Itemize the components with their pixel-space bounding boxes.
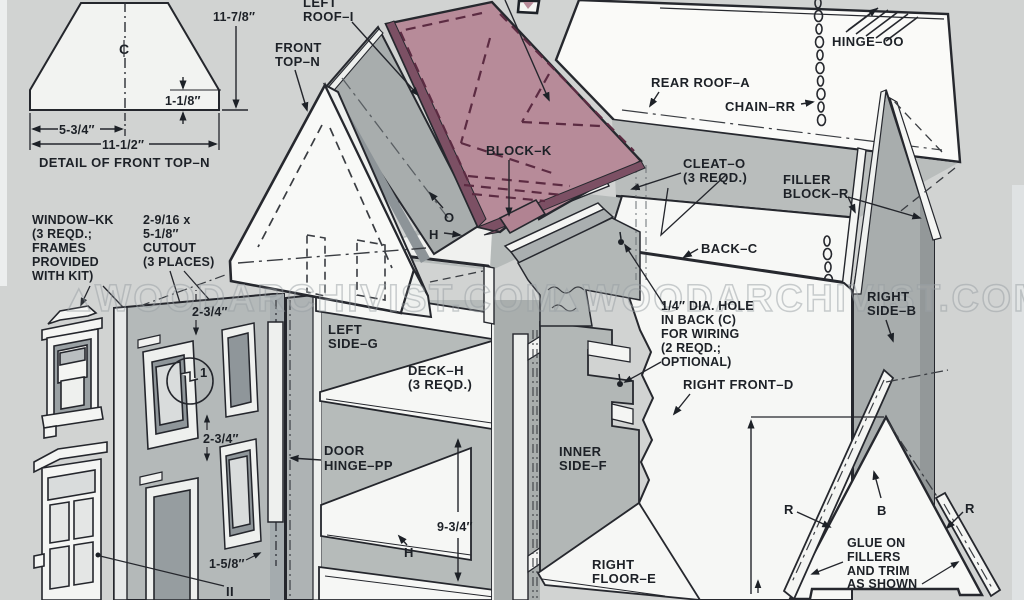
svg-text:(2 REQD.;: (2 REQD.;	[661, 341, 721, 355]
svg-text:SIDE–G: SIDE–G	[328, 336, 378, 351]
svg-text:PROVIDED: PROVIDED	[32, 255, 99, 269]
svg-text:REAR ROOF–A: REAR ROOF–A	[651, 75, 750, 90]
svg-text:1-5/8″: 1-5/8″	[209, 557, 245, 571]
svg-text:AS SHOWN: AS SHOWN	[847, 577, 917, 591]
svg-text:INNER: INNER	[559, 444, 602, 459]
svg-text:(3 REQD.;: (3 REQD.;	[32, 227, 92, 241]
svg-text:DETAIL OF FRONT TOP–N: DETAIL OF FRONT TOP–N	[39, 155, 210, 170]
svg-text:CHAIN–RR: CHAIN–RR	[725, 99, 796, 114]
svg-text:IN BACK (C): IN BACK (C)	[661, 313, 736, 327]
svg-text:HINGE–PP: HINGE–PP	[324, 458, 393, 473]
svg-text:BACK–C: BACK–C	[701, 241, 758, 256]
svg-text:1-1/8″: 1-1/8″	[165, 94, 201, 108]
svg-text:WOODARCHIVIST.COM: WOODARCHIVIST.COM	[583, 278, 1024, 320]
svg-text:BLOCK–R: BLOCK–R	[783, 186, 849, 201]
svg-text:2-3/4″: 2-3/4″	[203, 432, 239, 446]
svg-text:1/4″ DIA. HOLE: 1/4″ DIA. HOLE	[661, 299, 754, 313]
svg-text:5-1/8″: 5-1/8″	[143, 227, 179, 241]
svg-text:CLEAT–O: CLEAT–O	[683, 156, 746, 171]
svg-text:9-3/4″: 9-3/4″	[437, 520, 473, 534]
svg-text:H: H	[404, 545, 414, 560]
svg-text:(3 PLACES): (3 PLACES)	[143, 255, 214, 269]
svg-text:H: H	[429, 227, 439, 242]
svg-text:B: B	[877, 503, 887, 518]
svg-text:(3 REQD.): (3 REQD.)	[408, 377, 472, 392]
svg-text:R: R	[784, 502, 794, 517]
svg-text:LEFT: LEFT	[328, 322, 362, 337]
svg-text:WINDOW–KK: WINDOW–KK	[32, 213, 114, 227]
svg-text:11-7/8″: 11-7/8″	[213, 10, 255, 24]
svg-text:5-3/4″: 5-3/4″	[59, 123, 95, 137]
svg-text:R: R	[965, 501, 975, 516]
svg-text:(3 REQD.): (3 REQD.)	[683, 170, 747, 185]
svg-text:O: O	[444, 210, 455, 225]
svg-text:FLOOR–E: FLOOR–E	[592, 571, 656, 586]
svg-text:11-1/2″: 11-1/2″	[102, 138, 144, 152]
svg-text:OPTIONAL): OPTIONAL)	[661, 355, 732, 369]
svg-text:DECK–H: DECK–H	[408, 363, 464, 378]
svg-text:FRONT: FRONT	[275, 40, 322, 55]
svg-text:BLOCK–K: BLOCK–K	[486, 143, 552, 158]
svg-text:RIGHT FRONT–D: RIGHT FRONT–D	[683, 377, 794, 392]
svg-text:FILLER: FILLER	[783, 172, 831, 187]
svg-text:ROOF–I: ROOF–I	[303, 9, 354, 24]
svg-text:CUTOUT: CUTOUT	[143, 241, 196, 255]
svg-text:RIGHT: RIGHT	[592, 557, 634, 572]
svg-text:RIGHT: RIGHT	[867, 289, 909, 304]
svg-text:SIDE–F: SIDE–F	[559, 458, 607, 473]
svg-text:WOODARCHIVIST.COM: WOODARCHIVIST.COM	[95, 278, 560, 320]
svg-text:DOOR: DOOR	[324, 443, 365, 458]
svg-text:GLUE ON: GLUE ON	[847, 536, 905, 550]
svg-text:FRAMES: FRAMES	[32, 241, 86, 255]
svg-text:HINGE–OO: HINGE–OO	[832, 34, 904, 49]
svg-text:FILLERS: FILLERS	[847, 550, 900, 564]
svg-text:FOR WIRING: FOR WIRING	[661, 327, 739, 341]
svg-text:II: II	[226, 584, 234, 599]
svg-text:2-9/16 x: 2-9/16 x	[143, 213, 190, 227]
svg-text:1: 1	[200, 365, 208, 380]
svg-text:TOP–N: TOP–N	[275, 54, 320, 69]
svg-text:SIDE–B: SIDE–B	[867, 303, 916, 318]
svg-text:AND TRIM: AND TRIM	[847, 564, 910, 578]
svg-text:2-3/4″: 2-3/4″	[192, 305, 228, 319]
